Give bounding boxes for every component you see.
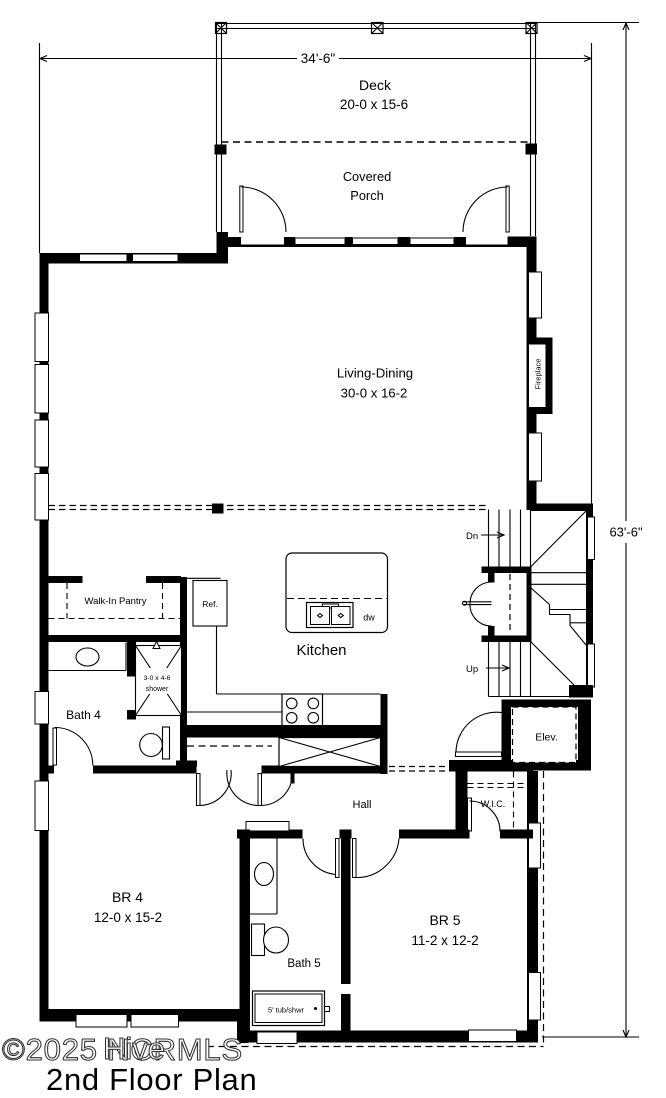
svg-text:11-2 x 12-2: 11-2 x 12-2 (411, 933, 478, 948)
svg-text:Porch: Porch (350, 188, 383, 203)
svg-text:Up: Up (466, 664, 478, 675)
svg-text:3-0 x 4-6: 3-0 x 4-6 (144, 675, 171, 682)
svg-text:W.I.C.: W.I.C. (481, 799, 506, 809)
svg-text:Kitchen: Kitchen (296, 642, 346, 659)
svg-text:Walk-In Pantry: Walk-In Pantry (85, 596, 147, 607)
svg-text:2nd Floor Plan: 2nd Floor Plan (46, 1062, 257, 1097)
svg-text:20-0 x 15-6: 20-0 x 15-6 (340, 97, 408, 112)
svg-text:Bath 5: Bath 5 (287, 958, 320, 970)
svg-text:Fireplace: Fireplace (534, 359, 543, 390)
svg-text:Bath 4: Bath 4 (66, 708, 101, 722)
svg-text:dw: dw (363, 613, 375, 623)
svg-text:Deck: Deck (359, 77, 392, 93)
svg-text:Elev.: Elev. (535, 732, 558, 744)
svg-text:34'-6": 34'-6" (301, 51, 336, 66)
svg-text:shower: shower (146, 686, 169, 693)
svg-text:63'-6": 63'-6" (609, 525, 643, 540)
svg-text:Dn: Dn (466, 531, 478, 542)
svg-text:BR 5: BR 5 (429, 912, 460, 928)
svg-text:BR 4: BR 4 (112, 889, 143, 905)
svg-text:Living-Dining: Living-Dining (337, 366, 413, 381)
svg-text:Hive: Hive (103, 1031, 165, 1066)
svg-text:Hall: Hall (353, 799, 372, 811)
svg-text:5' tub/shwr: 5' tub/shwr (268, 1006, 305, 1015)
svg-text:Ref.: Ref. (202, 599, 218, 609)
svg-text:12-0 x 15-2: 12-0 x 15-2 (94, 910, 162, 925)
svg-text:Covered: Covered (343, 169, 391, 184)
svg-text:30-0 x 16-2: 30-0 x 16-2 (341, 386, 408, 401)
